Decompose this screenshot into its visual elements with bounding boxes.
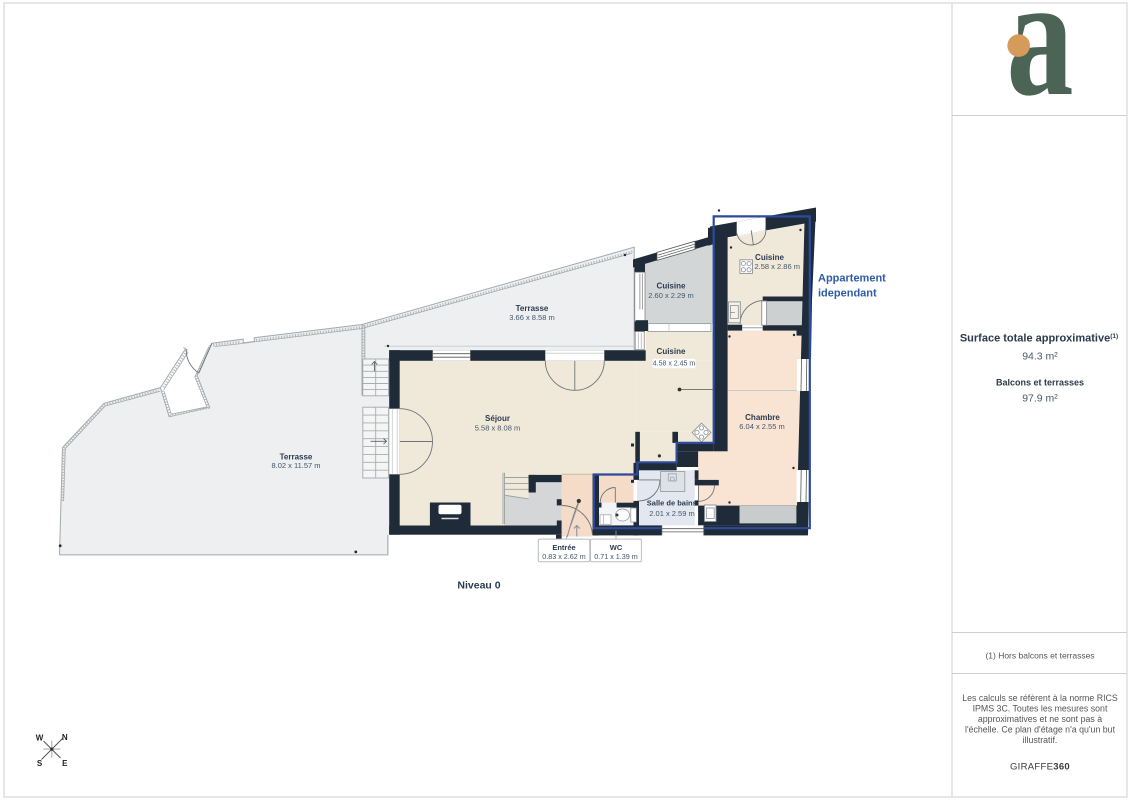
svg-text:Terrasse: Terrasse	[516, 304, 549, 313]
svg-text:Séjour: Séjour	[485, 414, 510, 423]
svg-text:3.66 x 8.58 m: 3.66 x 8.58 m	[509, 313, 554, 322]
svg-text:Surface totale approximative(1: Surface totale approximative(1)	[960, 333, 1118, 345]
svg-text:GIRAFFE360: GIRAFFE360	[1010, 762, 1070, 773]
svg-text:2.01 x 2.59 m: 2.01 x 2.59 m	[649, 509, 694, 518]
svg-text:approximatives et ne sont pas: approximatives et ne sont pas à	[978, 714, 1102, 724]
svg-text:WC: WC	[610, 543, 623, 552]
svg-text:idependant: idependant	[818, 288, 877, 300]
svg-text:Appartement: Appartement	[818, 273, 886, 285]
svg-text:2.58 x 2.86 m: 2.58 x 2.86 m	[755, 262, 800, 271]
svg-text:l'échelle. Ce plan d'étage n'a: l'échelle. Ce plan d'étage n'a qu'un but	[965, 725, 1116, 735]
svg-text:2.60 x 2.29 m: 2.60 x 2.29 m	[648, 291, 693, 300]
svg-text:Cuisine: Cuisine	[755, 253, 784, 262]
svg-text:IPMS 3C. Toutes les mesures so: IPMS 3C. Toutes les mesures sont	[973, 704, 1108, 714]
svg-text:Niveau 0: Niveau 0	[457, 580, 500, 592]
svg-text:0.83 x 2.62 m: 0.83 x 2.62 m	[542, 552, 586, 561]
svg-text:97.9 m²: 97.9 m²	[1022, 393, 1058, 405]
svg-text:W: W	[36, 734, 44, 743]
svg-text:4.58 x 2.45 m: 4.58 x 2.45 m	[653, 361, 696, 368]
svg-text:8.02 x 11.57 m: 8.02 x 11.57 m	[271, 461, 320, 470]
svg-text:Cuisine: Cuisine	[657, 347, 686, 356]
svg-text:illustratif.: illustratif.	[1023, 735, 1058, 745]
svg-text:N: N	[62, 733, 68, 742]
svg-text:a: a	[1006, 0, 1073, 132]
svg-text:(1) Hors balcons et terrasses: (1) Hors balcons et terrasses	[985, 651, 1094, 661]
svg-text:Chambre: Chambre	[745, 413, 780, 422]
svg-text:Entrée: Entrée	[552, 543, 575, 552]
svg-text:Salle de bains: Salle de bains	[647, 499, 697, 508]
svg-text:0.71 x 1.39 m: 0.71 x 1.39 m	[594, 552, 638, 561]
svg-text:5.58 x 8.08 m: 5.58 x 8.08 m	[475, 424, 520, 433]
svg-text:Les calculs se réfèrent à la n: Les calculs se réfèrent à la norme RICS	[962, 693, 1118, 703]
svg-text:6.04 x 2.55 m: 6.04 x 2.55 m	[739, 422, 784, 431]
svg-text:Cuisine: Cuisine	[657, 281, 686, 290]
svg-text:S: S	[37, 759, 43, 768]
svg-text:94.3 m²: 94.3 m²	[1022, 351, 1058, 363]
svg-text:Balcons et terrasses: Balcons et terrasses	[996, 378, 1084, 388]
svg-text:E: E	[62, 759, 68, 768]
